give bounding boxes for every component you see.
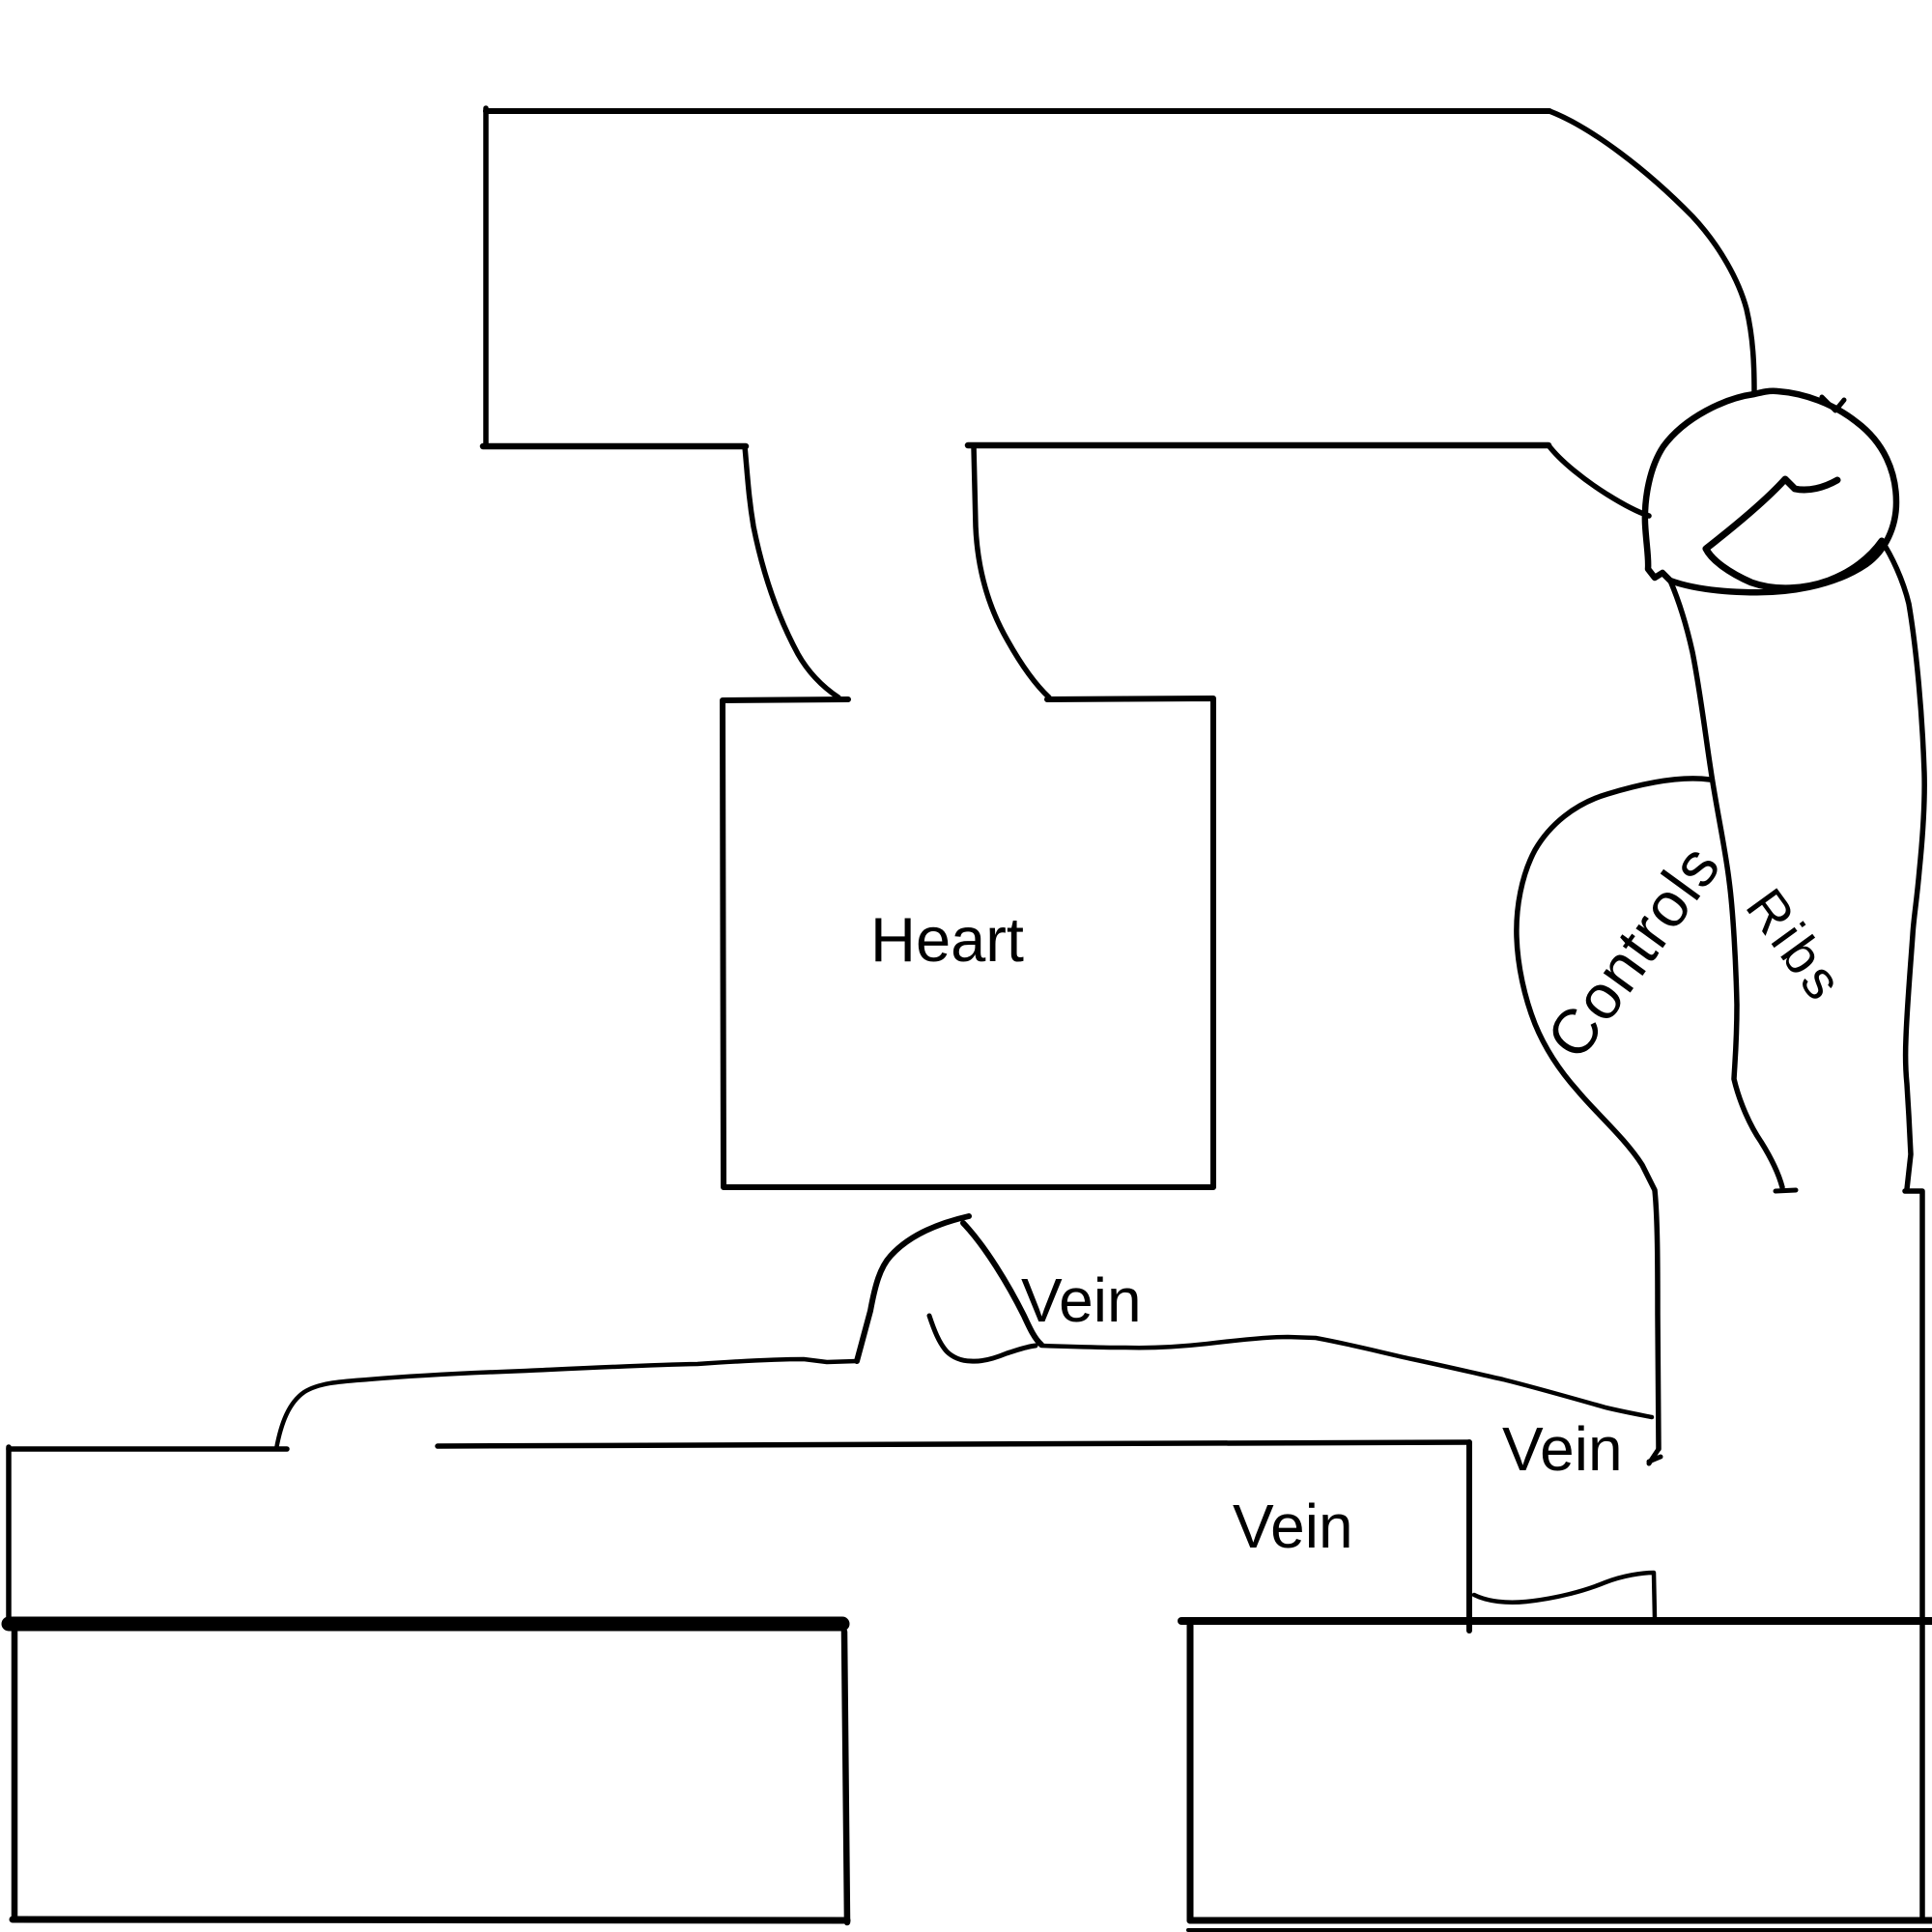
svg-text:Vein: Vein <box>1502 1414 1623 1484</box>
svg-text:Heart: Heart <box>870 904 1024 975</box>
svg-text:Vein: Vein <box>1021 1265 1142 1335</box>
svg-text:Vein: Vein <box>1233 1492 1353 1561</box>
svg-text:Controls: Controls <box>1533 832 1734 1071</box>
svg-text:Ribs: Ribs <box>1735 877 1857 1013</box>
